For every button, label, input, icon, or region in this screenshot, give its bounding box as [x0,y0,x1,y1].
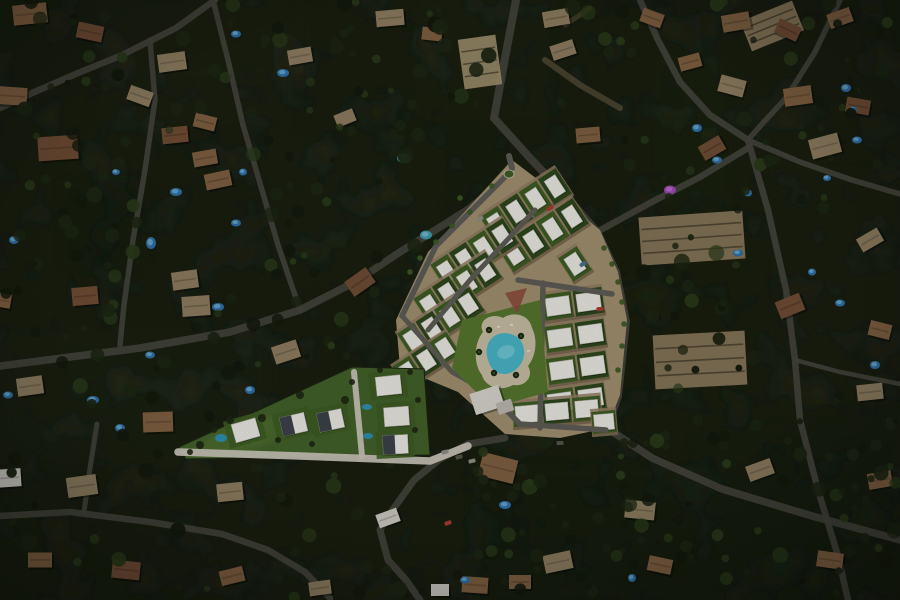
aerial-satellite-photo [0,0,900,600]
satellite-image-canvas [0,0,900,600]
photo-grain-overlay [0,0,900,600]
